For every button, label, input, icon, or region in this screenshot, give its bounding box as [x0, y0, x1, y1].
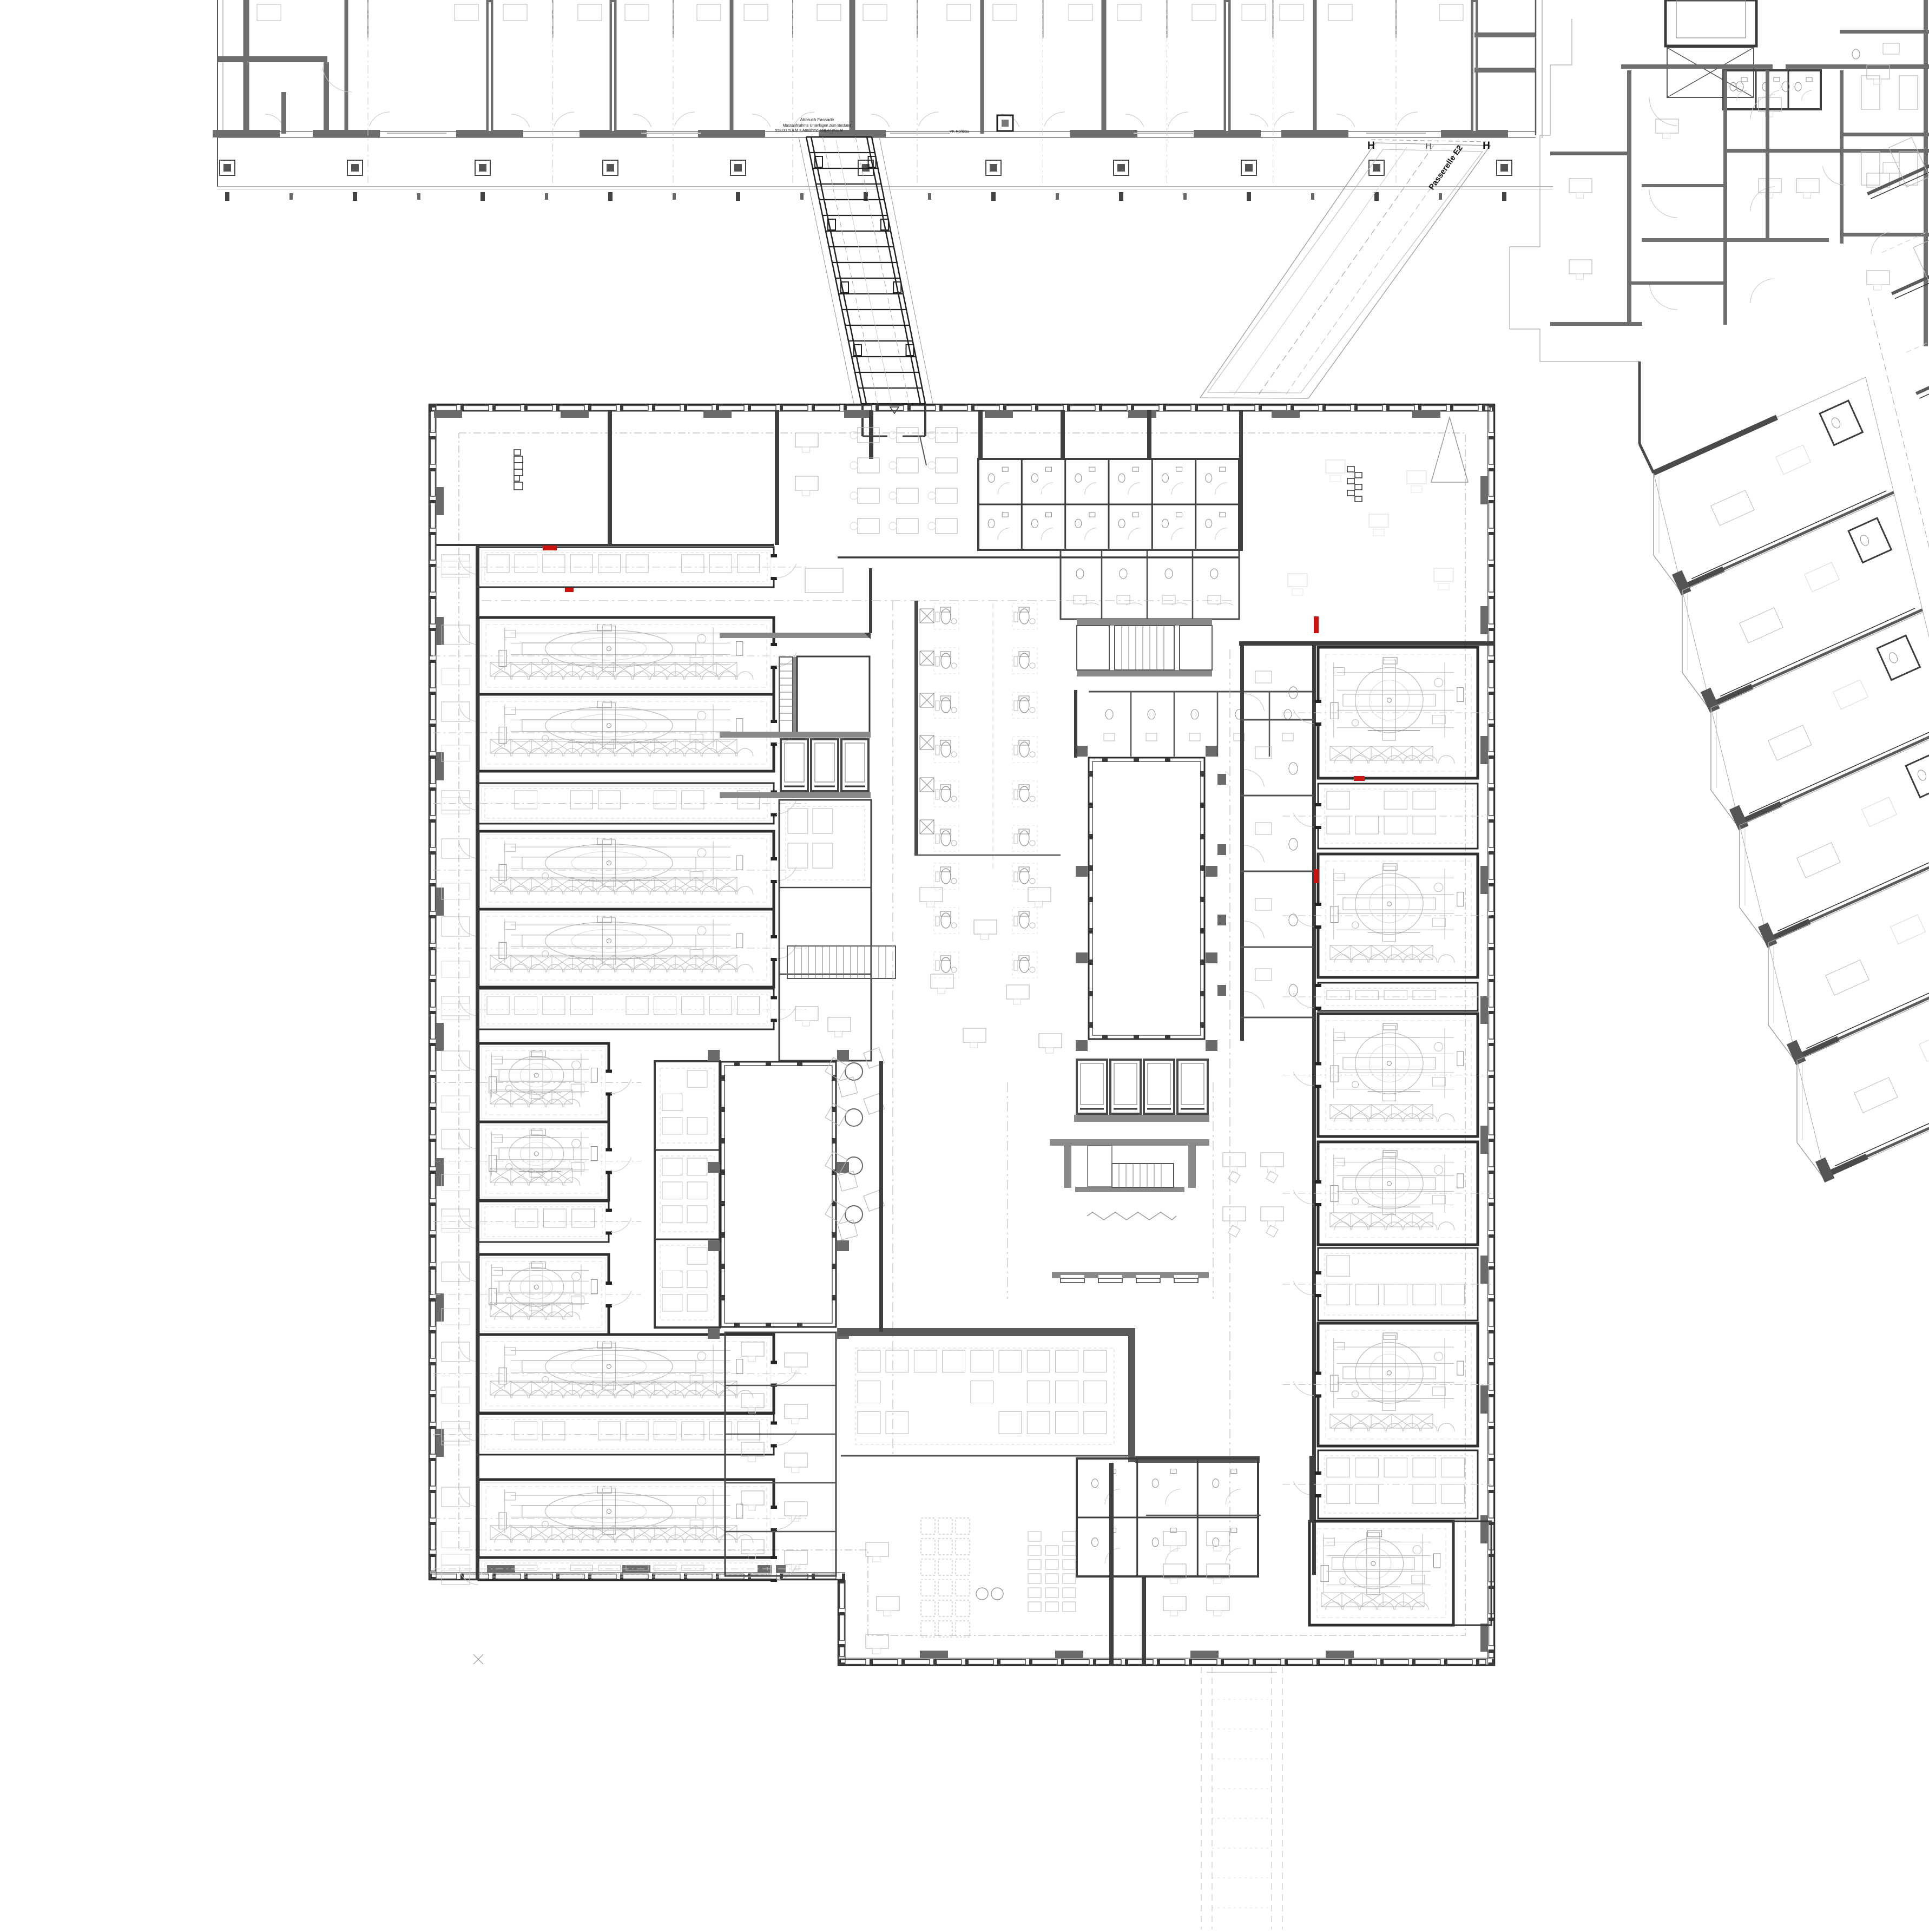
svg-text:VK Rohbau: VK Rohbau	[950, 130, 969, 134]
svg-text:H: H	[1426, 142, 1432, 151]
svg-text:Abbruch Fassade: Abbruch Fassade	[800, 117, 834, 122]
svg-text:H: H	[1367, 140, 1375, 152]
svg-text:Massaufnahme Unterlagen zum Be: Massaufnahme Unterlagen zum Bestand	[783, 124, 852, 128]
svg-text:558.00 m.u.M > Annahme 558.47: 558.00 m.u.M > Annahme 558.47 m.u.M	[775, 129, 842, 133]
